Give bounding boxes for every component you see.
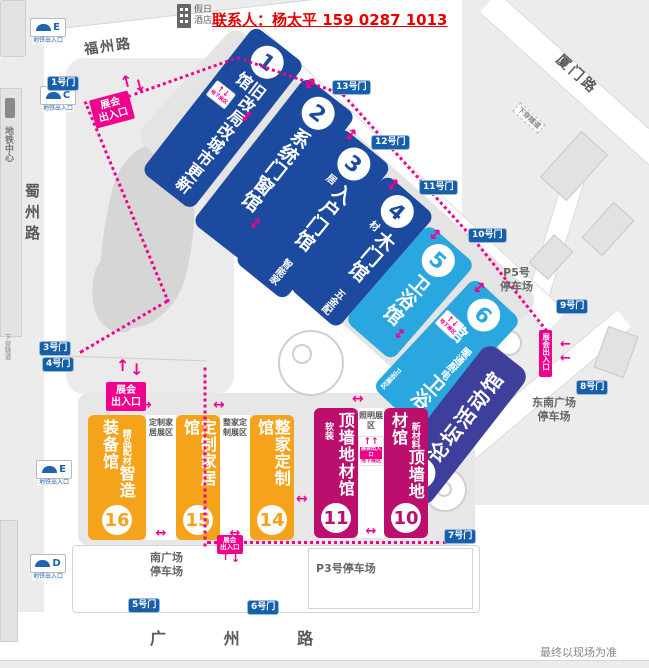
hall-16-sub: 精品配材 xyxy=(121,419,131,465)
slab-arrow-icon: ↔ xyxy=(352,392,364,406)
route-left-vertical xyxy=(204,368,207,547)
hotel-label-line1: 假日 xyxy=(194,5,212,16)
metro-exit-letter: D xyxy=(52,558,60,569)
parking-p3: P3号停车场 xyxy=(316,562,376,576)
hall-11-label: 顶墙地材馆软装 xyxy=(319,412,353,500)
metro-exit-caption: 地铁出入口 xyxy=(32,37,64,44)
metro-exit-box: D xyxy=(30,554,66,573)
underpass-left-label: 下穿隧道 xyxy=(2,334,12,360)
metro-exit-caption: 地铁出入口 xyxy=(42,105,74,112)
expo-entrance-south: 展会 出入口 xyxy=(217,535,243,554)
gate-12: 12号门 xyxy=(371,135,410,150)
street-fuzhou: 福州路 xyxy=(83,33,133,59)
hotel-label: 假日 酒店 xyxy=(194,5,212,27)
zone-whole-home: 整家定制展区 ↔ xyxy=(220,415,250,540)
hall-14-number: 14 xyxy=(257,505,287,535)
metro-center-building-icon xyxy=(5,98,15,118)
entrance-line2: 出入口 xyxy=(111,397,141,409)
zone-label: 定制家居展区 xyxy=(146,415,176,437)
parking-south: 南广场 停车场 xyxy=(150,551,183,580)
venue-map: 地铁中心 下穿隧道 福州路 厦门路 下穿隧道 蜀州路 广 州 路 假日 酒店 联… xyxy=(0,0,649,668)
parking-p5-line2: 停车场 xyxy=(500,280,533,294)
parking-p5-line1: P5号 xyxy=(500,266,533,280)
parking-south-line2: 停车场 xyxy=(150,565,183,579)
parking-southeast: 东南广场 停车场 xyxy=(532,396,576,425)
metro-exit-e-mid: E 地铁出入口 xyxy=(36,460,72,486)
bottom-strip xyxy=(0,660,649,668)
gate-8: 8号门 xyxy=(576,380,608,395)
entrance-arrow-icon: ← xyxy=(560,352,571,365)
street-shuzhou: 蜀州路 xyxy=(22,183,43,246)
metro-wave-icon xyxy=(36,24,51,31)
disclaimer-text: 最终以现场为准 xyxy=(540,644,617,660)
zone-custom-home: 定制家居展区 ↔ xyxy=(146,415,176,540)
contact-text: 联系人：杨太平 159 0287 1013 xyxy=(212,9,447,30)
corner-box xyxy=(0,0,26,57)
hall-5-label: 卫浴馆 xyxy=(378,269,432,327)
hall-14-label: 整家定制馆 xyxy=(255,419,289,502)
left-lower-strip xyxy=(0,520,18,642)
hall-16-label: 精品配材智造装备馆 xyxy=(100,419,134,502)
metro-exit-box: E xyxy=(36,460,72,479)
gate-7: 7号门 xyxy=(444,529,476,544)
hall-14: 整家定制馆 14 xyxy=(250,415,294,540)
hall-15-number: 15 xyxy=(183,505,213,535)
parking-south-line1: 南广场 xyxy=(150,551,183,565)
hall-10-label: 新材料顶墙地材馆 xyxy=(389,412,423,500)
metro-center-label: 地铁中心 xyxy=(2,126,15,162)
entrance-arrow-icon: ↓ xyxy=(231,553,240,564)
zone-arrow-icon: ↔ xyxy=(156,527,167,540)
metro-exit-caption: 地铁出入口 xyxy=(38,479,70,486)
hall-11-sub: 软装 xyxy=(323,412,333,440)
zone-arrow-icon: ↔ xyxy=(366,525,377,538)
slab-arrow-icon: ↔ xyxy=(213,398,225,412)
zone-lighting: 照明展区 ↑↑ 展会出入口 地下展区 ↔ xyxy=(358,408,384,538)
hall-15-label: 定制家居馆 xyxy=(181,419,215,502)
expo-entrance-west: 展会 出入口 xyxy=(106,382,146,411)
metro-wave-icon xyxy=(42,466,57,473)
hall-11-name: 顶墙地材馆 xyxy=(336,412,355,497)
parking-se-line1: 东南广场 xyxy=(532,396,576,410)
metro-wave-icon xyxy=(35,560,50,567)
underground-title: 展会出入口 xyxy=(360,447,382,459)
gate-10: 10号门 xyxy=(468,228,507,243)
metro-exit-d: D 地铁出入口 xyxy=(30,554,66,580)
parking-se-line2: 停车场 xyxy=(532,410,576,424)
gap-arrow-icon: ↔ xyxy=(296,492,308,506)
entrance-line2: 出入口 xyxy=(220,544,240,551)
entrance-arrow-icon: ↑ xyxy=(116,358,129,374)
entrance-vertical-label: 展会出入口 xyxy=(541,333,550,371)
metro-exit-e-top: E 地铁出入口 xyxy=(30,18,66,44)
gate-3: 3号门 xyxy=(39,341,71,356)
metro-wave-icon xyxy=(46,92,61,99)
metro-exit-letter: C xyxy=(63,90,70,101)
entrance-arrow-icon: ← xyxy=(560,338,571,351)
hall-11-number: 11 xyxy=(321,503,351,533)
underground-area-label: 地下展区 xyxy=(360,459,382,465)
hall-11: 顶墙地材馆软装 11 xyxy=(314,408,358,538)
hall-10: 新材料顶墙地材馆 10 xyxy=(384,408,428,538)
gate-5: 5号门 xyxy=(128,598,160,613)
street-guangzhou: 广 州 路 xyxy=(150,625,339,649)
metro-exit-letter: E xyxy=(59,464,66,475)
metro-exit-box: E xyxy=(30,18,66,37)
gate-4: 4号门 xyxy=(42,357,74,372)
p3-parking-block xyxy=(308,548,473,609)
zone-label: 整家定制展区 xyxy=(220,415,250,437)
hall-5-name: 卫浴馆 xyxy=(378,269,434,329)
entrance-line1: 展会 xyxy=(111,385,141,397)
hall-16: 精品配材智造装备馆 16 xyxy=(88,415,146,540)
gate-11: 11号门 xyxy=(419,180,458,195)
hotel-icon xyxy=(177,4,191,28)
roundabout-ring-small xyxy=(292,344,312,364)
route-south xyxy=(207,541,447,544)
hall-15-name: 定制家居馆 xyxy=(181,419,217,487)
entrance-arrow-icon: ↓ xyxy=(130,362,143,378)
expo-entrance-east: 展会出入口 xyxy=(539,330,552,377)
metro-exit-caption: 地铁出入口 xyxy=(32,573,64,580)
gate-6: 6号门 xyxy=(247,600,279,615)
metro-exit-letter: E xyxy=(53,22,60,33)
gate-13: 13号门 xyxy=(332,80,371,95)
hall-10-sub: 新材料 xyxy=(410,412,420,449)
gate-1: 1号门 xyxy=(47,76,79,91)
hotel-label-line2: 酒店 xyxy=(194,16,212,27)
hall-14-name: 整家定制馆 xyxy=(255,419,291,487)
underground-entrance-badge: ↑↑ 展会出入口 地下展区 xyxy=(358,436,384,466)
hall-16-number: 16 xyxy=(102,505,132,535)
roundabout-ring xyxy=(278,330,344,396)
parking-p5: P5号 停车场 xyxy=(500,266,533,295)
gate-9: 9号门 xyxy=(556,299,588,314)
zone-label: 照明展区 xyxy=(358,408,384,430)
hall-15: 定制家居馆 15 xyxy=(176,415,220,540)
hall-10-number: 10 xyxy=(391,503,421,533)
